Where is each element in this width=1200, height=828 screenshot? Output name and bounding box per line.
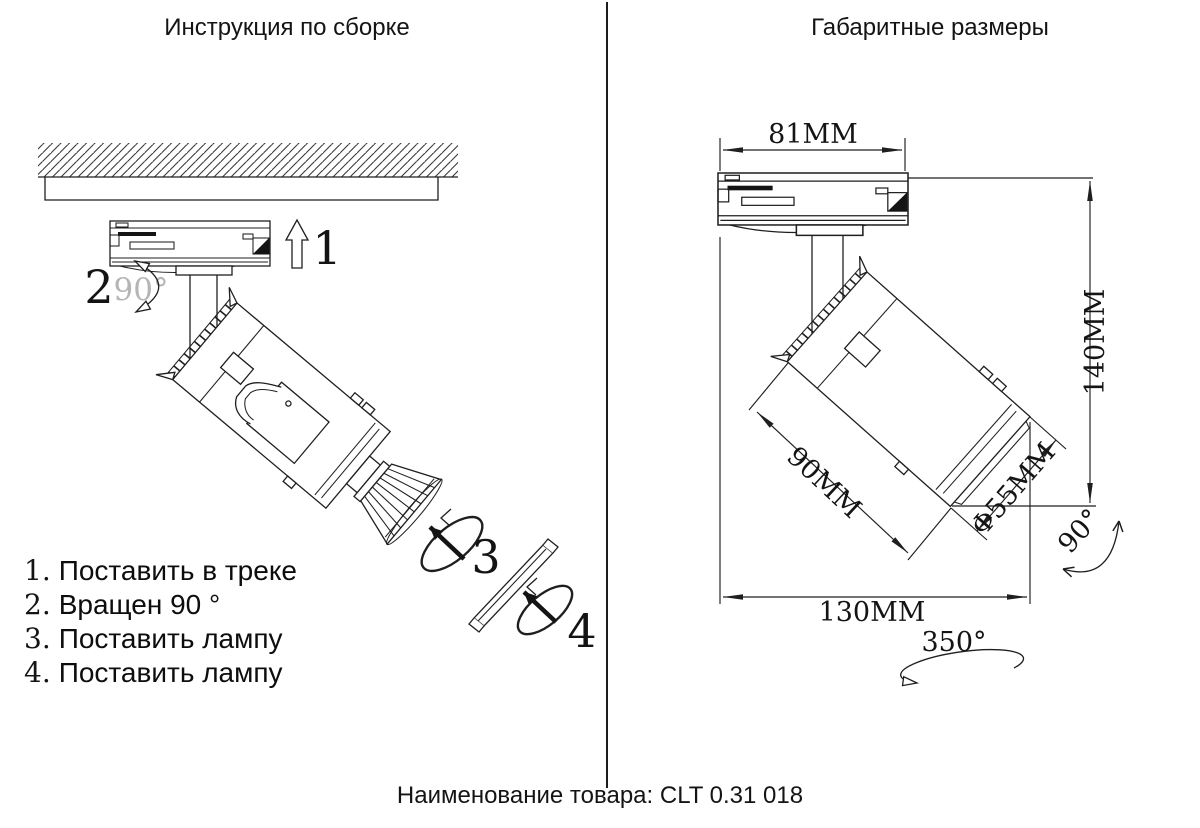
product-name-label: Наименование товара: xyxy=(397,782,653,809)
dim-label-90mm: 90MM xyxy=(780,441,867,525)
callout-1: 1 xyxy=(312,221,341,275)
step2-callout: 2 90° xyxy=(84,260,168,314)
step-text: Поставить лампу xyxy=(59,623,283,655)
step-number: 3. xyxy=(24,622,51,655)
up-arrow-icon xyxy=(286,220,308,268)
step1-callout: 1 xyxy=(286,220,342,275)
assembly-steps: 1. Поставить в треке 2. Вращен 90 ° 3. П… xyxy=(24,554,297,690)
insert-arrow-icon xyxy=(524,592,556,622)
product-name: Наименование товара: CLT 0.31 018 xyxy=(0,782,1200,810)
step-item: 3. Поставить лампу xyxy=(24,622,297,656)
product-name-value: CLT 0.31 018 xyxy=(660,782,803,809)
rotation-angle-annotation: 350° xyxy=(901,627,1024,683)
step-number: 1. xyxy=(24,554,51,587)
step-item: 2. Вращен 90 ° xyxy=(24,588,297,622)
insert-arrow-icon xyxy=(430,527,464,559)
step3-callout: 3 xyxy=(413,508,501,584)
step-item: 1. Поставить в треке xyxy=(24,554,297,588)
step4-callout: 4 xyxy=(510,577,597,658)
step-number: 2. xyxy=(24,588,51,621)
step-item: 4. Поставить лампу xyxy=(24,656,297,690)
angle-label-90deg: 90° xyxy=(1052,503,1107,559)
dimensions-diagram: 81MM 140MM 130MM 90MM xyxy=(718,119,1119,683)
callout-3: 3 xyxy=(471,530,500,584)
step-text: Поставить лампу xyxy=(59,657,283,689)
track-rail xyxy=(45,177,438,200)
callout-2: 2 xyxy=(84,260,113,314)
tilt-angle-annotation: 90° xyxy=(1052,503,1119,572)
dim-label-81mm: 81MM xyxy=(768,119,858,150)
step-number: 4. xyxy=(24,656,51,689)
step-text: Вращен 90 ° xyxy=(59,589,220,621)
ceiling xyxy=(38,143,458,200)
dim-81mm: 81MM xyxy=(720,119,905,171)
line-art: 1 2 90° 3 4 xyxy=(0,0,1200,828)
instruction-sheet: Инструкция по сборке Габаритные размеры xyxy=(0,0,1200,828)
spotlight-body-left xyxy=(156,287,453,562)
dim-label-140mm: 140MM xyxy=(1080,289,1111,396)
rotate-90-label: 90° xyxy=(114,272,169,308)
dim-label-130mm: 130MM xyxy=(819,597,926,628)
step-text: Поставить в треке xyxy=(59,555,297,587)
callout-4: 4 xyxy=(567,604,596,658)
